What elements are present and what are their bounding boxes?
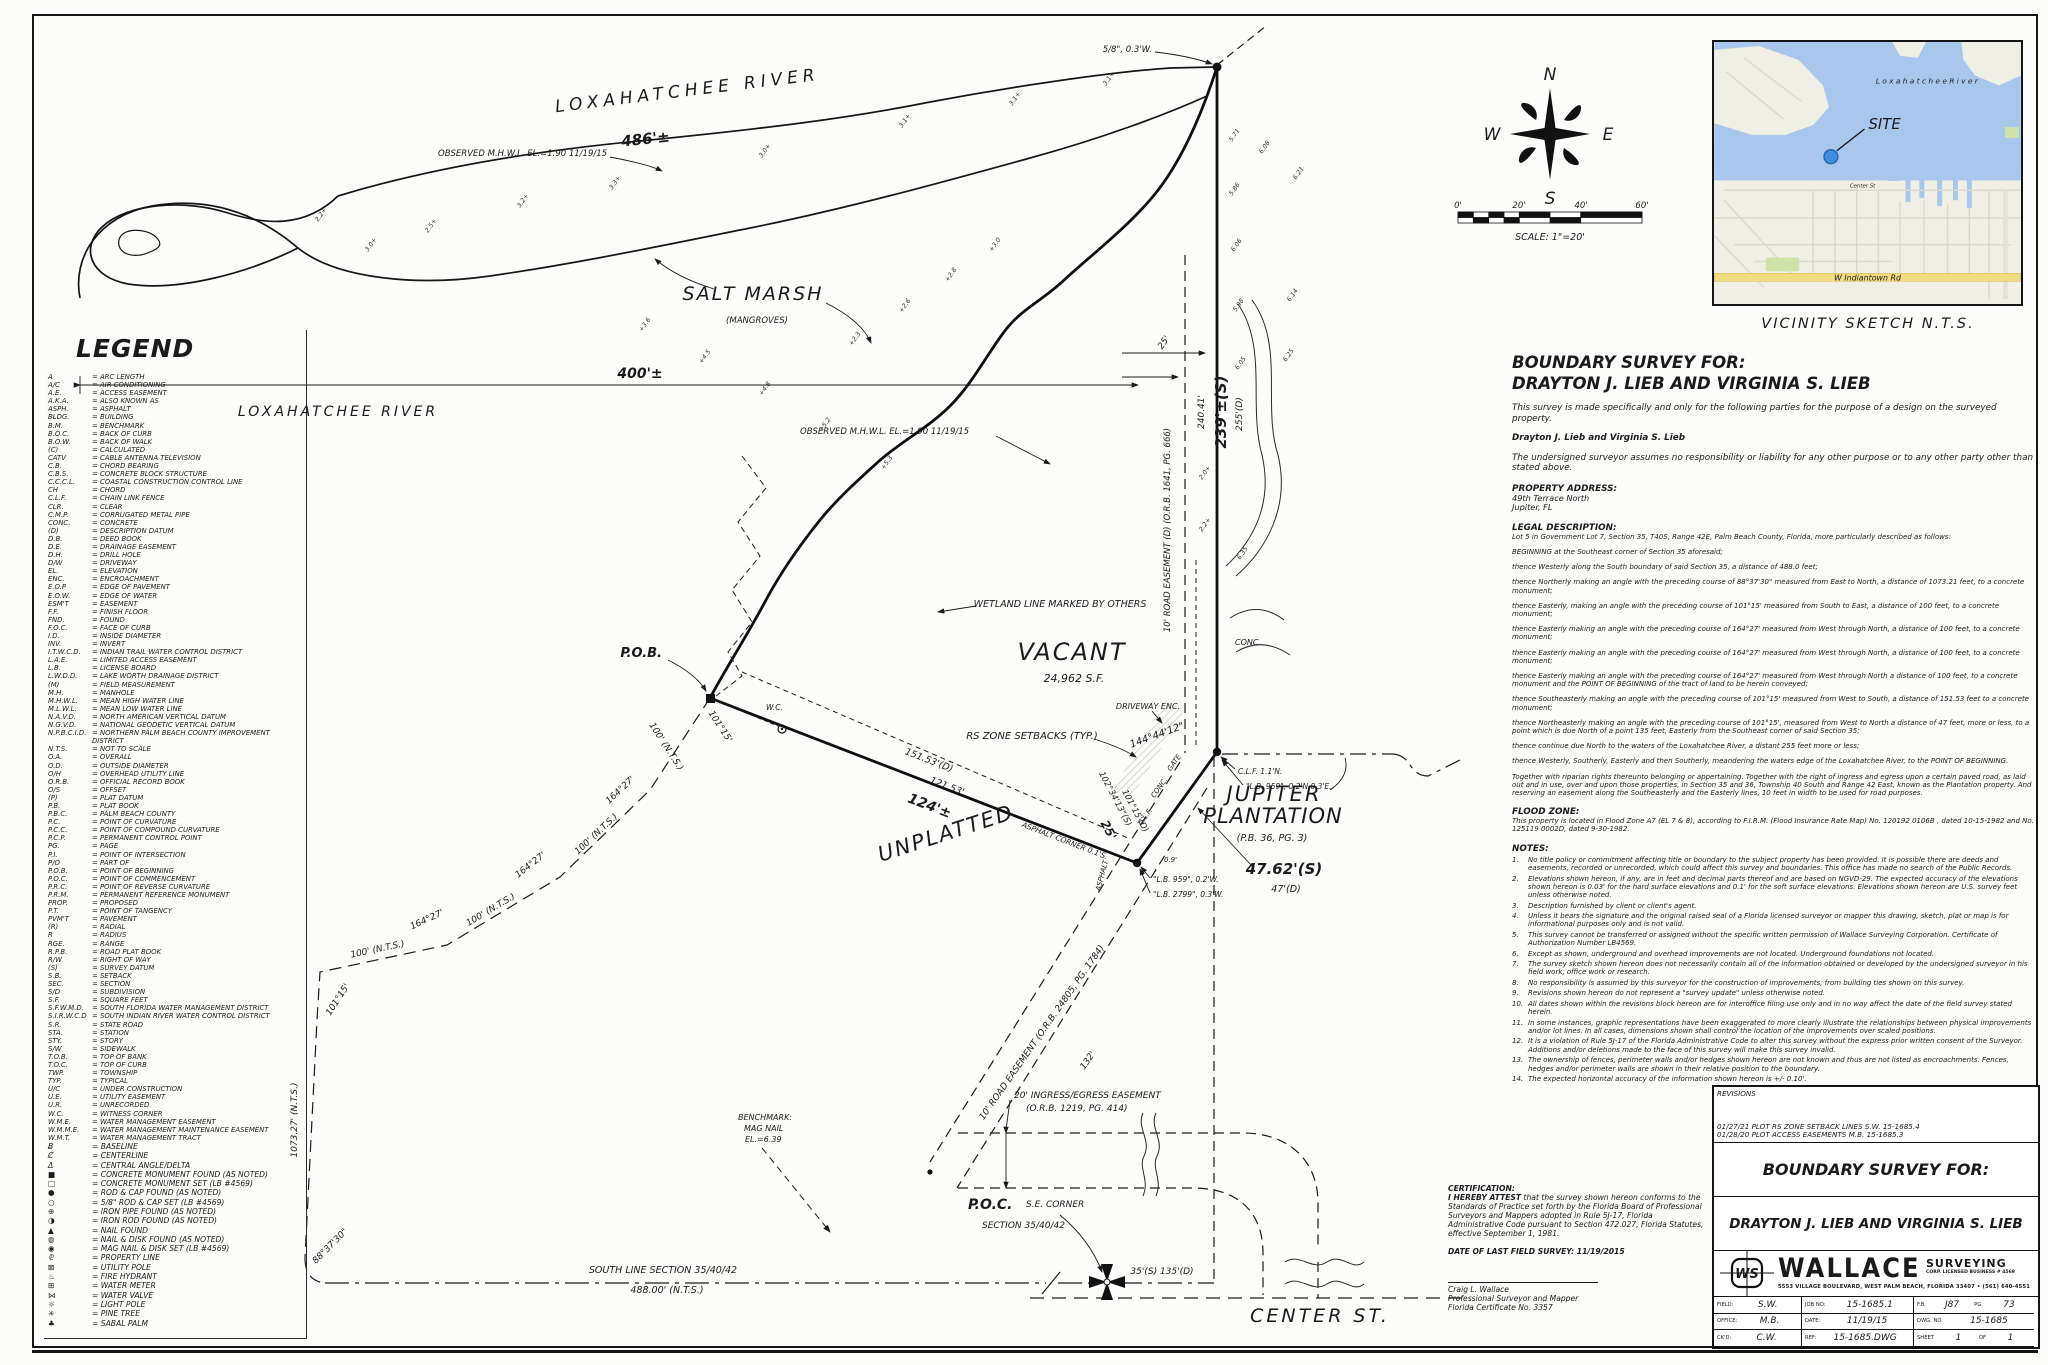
legend-abbr: ⊞ — [48, 1281, 92, 1290]
legend-meaning: EDGE OF PAVEMENT — [92, 583, 302, 591]
legend-abbr: ☼ — [48, 1300, 92, 1309]
vicinity-site-label: SITE — [1868, 116, 1901, 133]
legend-abbr: STA. — [48, 1029, 92, 1037]
signer-certificate: Florida Certificate No. 3357 — [1448, 1303, 1710, 1312]
flood-zone-label: FLOOD ZONE: — [1512, 807, 2036, 817]
spot-elevation: 2.5+ — [424, 218, 439, 235]
label-river-name-top: LOXAHATCHEE RIVER — [554, 65, 821, 117]
legal-paragraph: thence Northeasterly making an angle wit… — [1512, 719, 2036, 735]
property-address-label: PROPERTY ADDRESS: — [1512, 484, 2036, 494]
legend-abbr: P.B. — [48, 802, 92, 810]
note-item: 13. The ownership of fences, perimeter w… — [1512, 1056, 2036, 1073]
label-vacant-sf: 24,962 S.F. — [1044, 672, 1105, 685]
legend-abbr: B.O.C. — [48, 430, 92, 438]
legend-entry: CONC. CONCRETE — [48, 519, 302, 527]
legend-meaning: SUBDIVISION — [92, 988, 302, 996]
label-dim-124: 124'± — [905, 791, 953, 822]
legend-entry: I.D. INSIDE DIAMETER — [48, 632, 302, 640]
legend-meaning: EDGE OF WATER — [92, 592, 302, 600]
legend-entry: ■ CONCRETE MONUMENT FOUND (AS NOTED) — [48, 1170, 302, 1179]
label-dim-488: 488.00' (N.T.S.) — [630, 1285, 703, 1296]
legend-abbr: U/C — [48, 1085, 92, 1093]
signer-name: Craig L. Wallace — [1448, 1285, 1710, 1294]
legend-entry: (R) RADIAL — [48, 923, 302, 931]
legend-abbr: P.I. — [48, 851, 92, 859]
legend-entry: TYP. TYPICAL — [48, 1077, 302, 1085]
legend-entry: S.I.R.W.C.D SOUTH INDIAN RIVER WATER CON… — [48, 1012, 302, 1020]
legend-entry: RGE. RANGE — [48, 940, 302, 948]
legend-entry: O.R.B. OFFICIAL RECORD BOOK — [48, 778, 302, 786]
legend-meaning: DEED BOOK — [92, 535, 302, 543]
legend-meaning: POINT OF CURVATURE — [92, 818, 302, 826]
legend-meaning: RADIAL — [92, 923, 302, 931]
legend-entry: C.L.F. CHAIN LINK FENCE — [48, 494, 302, 502]
label-wc: W.C. — [766, 703, 783, 712]
label-pob: P.O.B. — [620, 646, 662, 661]
note-item: 4. Unless it bears the signature and the… — [1512, 912, 2036, 929]
of-label: OF — [1979, 1335, 1986, 1341]
legend-meaning: OVERALL — [92, 753, 302, 761]
legend-entry: L.B. LICENSE BOARD — [48, 664, 302, 672]
note-number: 14. — [1512, 1075, 1528, 1083]
legend-meaning: LICENSE BOARD — [92, 664, 302, 672]
legend-meaning: WATER MANAGEMENT EASEMENT — [92, 1118, 302, 1126]
vicinity-river-label: L o x a h a t c h e e R i v e r — [1876, 77, 1979, 86]
spot-elevation: 2.0+ — [1198, 465, 1213, 482]
legend-entry: ⊠ UTILITY POLE — [48, 1263, 302, 1272]
legend-meaning: ASPHALT — [92, 405, 302, 413]
legend-entry: SEC. SECTION — [48, 980, 302, 988]
legend-meaning: WATER MANAGEMENT MAINTENANCE EASEMENT — [92, 1126, 302, 1134]
legend-abbr: ESM'T — [48, 600, 92, 608]
legend-entry: P.T. POINT OF TANGENCY — [48, 907, 302, 915]
legend-abbr: O/H — [48, 770, 92, 778]
legend-meaning: POINT OF COMPOUND CURVATURE — [92, 826, 302, 834]
legend-meaning: 5/8" ROD & CAP SET (LB #4569) — [92, 1198, 302, 1207]
label-center-st: CENTER ST. — [1250, 1305, 1390, 1327]
legend-meaning: DRIVEWAY — [92, 559, 302, 567]
legend-meaning: FIELD MEASUREMENT — [92, 681, 302, 689]
legend-entry: ▲ NAIL FOUND — [48, 1226, 302, 1235]
label-ang-16427-a: 164°27' — [604, 775, 637, 807]
legend-abbr: P.C.P. — [48, 834, 92, 842]
label-rs-setbacks: RS ZONE SETBACKS (TYP.) — [966, 731, 1098, 742]
legend-meaning: NORTHERN PALM BEACH COUNTY IMPROVEMENT D… — [92, 729, 302, 745]
legend-abbr: P.O.C. — [48, 875, 92, 883]
legend-abbr: CLR. — [48, 503, 92, 511]
label-south-line: SOUTH LINE SECTION 35/40/42 — [589, 1265, 737, 1276]
legend-meaning: TOWNSHIP — [92, 1069, 302, 1077]
label-salt-marsh: SALT MARSH — [683, 283, 824, 305]
legend-meaning: WITNESS CORNER — [92, 1110, 302, 1118]
legend-meaning: PLAT BOOK — [92, 802, 302, 810]
highway-vertical — [2003, 190, 2008, 299]
label-jupiter-3: (P.B. 36, PG. 3) — [1237, 833, 1308, 844]
label-asphalt-v: ASPHALT — [1094, 859, 1110, 893]
legend-abbr: ● — [48, 1188, 92, 1197]
legend-abbr: A.E. — [48, 389, 92, 397]
label-dim-100-d: 100' (N.T.S.) — [350, 939, 406, 960]
site-marker — [1824, 150, 1838, 164]
titleblock-survey-for: BOUNDARY SURVEY FOR: — [1714, 1143, 2038, 1197]
legend-abbr: W.M.T. — [48, 1134, 92, 1142]
note-number: 5. — [1512, 931, 1528, 948]
legend-entry: ☼ LIGHT POLE — [48, 1300, 302, 1309]
legend-meaning: MEAN HIGH WATER LINE — [92, 697, 302, 705]
legend-meaning: CONCRETE MONUMENT SET (LB #4569) — [92, 1179, 302, 1188]
cell-sheet: SHEET1OF1 — [1914, 1330, 2034, 1347]
legend-abbr: (D) — [48, 527, 92, 535]
legend-meaning: NOT TO SCALE — [92, 745, 302, 753]
legend-entry: ◍ NAIL & DISK FOUND (AS NOTED) — [48, 1235, 302, 1244]
label-ingress-2: (O.R.B. 1219, PG. 414) — [1026, 1104, 1128, 1114]
legend-entry: ♣ SABAL PALM — [48, 1319, 302, 1328]
label-ang-10115-a: 101°15' — [706, 709, 734, 744]
label-ang-16427-b: 164°27' — [514, 851, 548, 881]
legend-entry: ◑ IRON ROD FOUND (AS NOTED) — [48, 1216, 302, 1225]
note-number: 1. — [1512, 856, 1528, 873]
legend-entry: EL. ELEVATION — [48, 567, 302, 575]
note-number: 7. — [1512, 960, 1528, 977]
legend-abbr: U.R. — [48, 1101, 92, 1109]
legend-abbr: M.H. — [48, 689, 92, 697]
compass-e: E — [1603, 125, 1614, 145]
legend-entry: P.C.P. PERMANENT CONTROL POINT — [48, 834, 302, 842]
vicinity-caption: VICINITY SKETCH N.T.S. — [1712, 316, 2024, 332]
note-item: 3. Description furnished by client or cl… — [1512, 902, 2036, 910]
job-value: 15-1685.1 — [1829, 1300, 1910, 1310]
monument-ne-corner — [1213, 63, 1222, 72]
legend-entry: F.F. FINISH FLOOR — [48, 608, 302, 616]
legend-meaning: NAIL & DISK FOUND (AS NOTED) — [92, 1235, 302, 1244]
survey-intro: This survey is made specifically and onl… — [1512, 403, 2036, 424]
label-dim-486: 486'± — [619, 128, 670, 151]
ref-value: 15-1685.DWG — [1820, 1333, 1910, 1343]
legend-meaning: UTILITY EASEMENT — [92, 1093, 302, 1101]
pg-value: 73 — [1987, 1300, 2031, 1310]
legend-meaning: DESCRIPTION DATUM — [92, 527, 302, 535]
legend-abbr: □ — [48, 1179, 92, 1188]
note-text: The survey sketch shown hereon does not … — [1528, 960, 2036, 977]
legend-abbr: PROP. — [48, 899, 92, 907]
revisions-label: REVISIONS — [1717, 1089, 1756, 1098]
legend-entry: E.O.W. EDGE OF WATER — [48, 592, 302, 600]
legend-entry: C.B. CHORD BEARING — [48, 462, 302, 470]
dashed-lines — [305, 26, 1462, 1298]
legend-abbr: E.O.P — [48, 583, 92, 591]
note-text: Revisions shown hereon do not represent … — [1528, 989, 2036, 997]
legend-meaning: CHAIN LINK FENCE — [92, 494, 302, 502]
legend-abbr: FND. — [48, 616, 92, 624]
legend-abbr: R — [48, 931, 92, 939]
property-address-line: 49th Terrace North — [1512, 494, 2036, 504]
legend-abbr: I.T.W.C.D. — [48, 648, 92, 656]
legend-entry: S/W SIDEWALK — [48, 1045, 302, 1053]
legend-entry: U/C UNDER CONSTRUCTION — [48, 1085, 302, 1093]
spot-elevation: 6.06 — [1230, 238, 1244, 254]
legend-abbr: O/S — [48, 786, 92, 794]
legend-meaning: LAKE WORTH DRAINAGE DISTRICT — [92, 672, 302, 680]
legend-meaning: POINT OF INTERSECTION — [92, 851, 302, 859]
label-vacant: VACANT — [1018, 638, 1127, 666]
spot-elevation: +3.0 — [988, 237, 1003, 254]
label-asphalt-corner: ASPHALT CORNER 0.1'S. — [1020, 820, 1109, 861]
legend-entry: N.A.V.D. NORTH AMERICAN VERTICAL DATUM — [48, 713, 302, 721]
cell-dwg: DWG. NO.15-1685 — [1914, 1314, 2034, 1331]
label-dim-12153: 121.53' — [928, 775, 965, 798]
label-cor-ne: 5/8", 0.3'W. — [1103, 45, 1152, 55]
legend-meaning: CENTERLINE — [92, 1151, 302, 1160]
legend-meaning: PERMANENT REFERENCE MONUMENT — [92, 891, 302, 899]
label-wetland: WETLAND LINE MARKED BY OTHERS — [974, 599, 1147, 610]
legend-entry: D/W DRIVEWAY — [48, 559, 302, 567]
scale-tick-0: 0' — [1454, 201, 1462, 211]
sheet-value: 1 — [1938, 1333, 1979, 1343]
legend-entry: STY. STORY — [48, 1037, 302, 1045]
legend-meaning: BENCHMARK — [92, 422, 302, 430]
survey-for-heading: BOUNDARY SURVEY FOR: — [1512, 352, 2036, 373]
legend-entry: O.D. OUTSIDE DIAMETER — [48, 762, 302, 770]
property-address: 49th Terrace NorthJupiter, FL — [1512, 494, 2036, 513]
legend-entry: ○ 5/8" ROD & CAP SET (LB #4569) — [48, 1198, 302, 1207]
legend-entry: ● ROD & CAP FOUND (AS NOTED) — [48, 1188, 302, 1197]
spot-elevation: +4.5 — [698, 349, 713, 366]
monuments — [706, 63, 1222, 1175]
legend-abbr: U.E. — [48, 1093, 92, 1101]
legend-entry: R/W RIGHT OF WAY — [48, 956, 302, 964]
legend-abbr: ◍ — [48, 1235, 92, 1244]
dwg-value: 15-1685 — [1947, 1316, 2031, 1326]
legend-entry: C.M.P. CORRUGATED METAL PIPE — [48, 511, 302, 519]
legend-meaning: PROPERTY LINE — [92, 1253, 302, 1262]
note-text: Description furnished by client or clien… — [1528, 902, 2036, 910]
label-dim-132: 132' — [1079, 1050, 1098, 1072]
revision-entry: 01/28/20 PLOT ACCESS EASEMENTS M.B. 15-1… — [1717, 1131, 1920, 1140]
legend-entry: N.P.B.C.I.D. NORTHERN PALM BEACH COUNTY … — [48, 729, 302, 745]
field-value: S.W. — [1737, 1300, 1798, 1310]
legend-entry: T.O.B. TOP OF BANK — [48, 1053, 302, 1061]
ws-monogram-icon: WS — [1718, 1251, 1776, 1296]
sheet-border-bottom — [32, 1350, 2038, 1353]
notes-label: NOTES: — [1512, 844, 2036, 854]
legend-entry: B.O.C. BACK OF CURB — [48, 430, 302, 438]
legend-meaning: CABLE ANTENNA TELEVISION — [92, 454, 302, 462]
field-label: FIELD: — [1717, 1302, 1733, 1308]
label-ingress-1: 20' INGRESS/EGRESS EASEMENT — [1014, 1091, 1162, 1101]
legend-abbr: P.R.C. — [48, 883, 92, 891]
legend-abbr: O.A. — [48, 753, 92, 761]
note-number: 13. — [1512, 1056, 1528, 1073]
legend-entry: P.B. PLAT BOOK — [48, 802, 302, 810]
legend-entry: U.R. UNRECORDED — [48, 1101, 302, 1109]
legend-abbr: ♣ — [48, 1319, 92, 1328]
legend-abbr: M.L.W.L. — [48, 705, 92, 713]
legend-entry: L.W.D.D. LAKE WORTH DRAINAGE DISTRICT — [48, 672, 302, 680]
legend-entry: ⊕ IRON PIPE FOUND (AS NOTED) — [48, 1207, 302, 1216]
legend-abbr: PVM'T — [48, 915, 92, 923]
legend-abbr: L.W.D.D. — [48, 672, 92, 680]
legend-meaning: SECTION — [92, 980, 302, 988]
spot-elevation: 3.2+ — [516, 193, 531, 210]
legend-title: LEGEND — [76, 334, 302, 363]
company-license: CORP. LICENSED BUSINESS # 4569 — [1926, 1270, 2015, 1275]
legend-abbr: STY. — [48, 1037, 92, 1045]
legend-entry: S.F.W.M.D. SOUTH FLORIDA WATER MANAGEMEN… — [48, 1004, 302, 1012]
legend-meaning: WATER METER — [92, 1281, 302, 1290]
note-item: 5. This survey cannot be transferred or … — [1512, 931, 2036, 948]
legend-abbr: P.B.C. — [48, 810, 92, 818]
legend-abbr: Ƀ — [48, 1142, 92, 1151]
legend-meaning: ROD & CAP FOUND (AS NOTED) — [92, 1188, 302, 1197]
cell-field: FIELD:S.W. — [1714, 1297, 1802, 1314]
legend-entry: ✳ PINE TREE — [48, 1309, 302, 1318]
label-mangroves: (MANGROVES) — [726, 316, 788, 326]
cell-fb-pg: F.B.J87PG.73 — [1914, 1297, 2034, 1314]
legend-entry: D.B. DEED BOOK — [48, 535, 302, 543]
note-text: This survey cannot be transferred or ass… — [1528, 931, 2036, 948]
pg-label: PG. — [1974, 1302, 1983, 1308]
office-label: OFFICE: — [1717, 1318, 1737, 1324]
legend-entry: N.G.V.D. NATIONAL GEODETIC VERTICAL DATU… — [48, 721, 302, 729]
legend-entry: U.E. UTILITY EASEMENT — [48, 1093, 302, 1101]
note-text: Except as shown, underground and overhea… — [1528, 950, 2036, 958]
note-item: 9. Revisions shown hereon do not represe… — [1512, 989, 2036, 997]
label-benchmark-2: MAG NAIL — [744, 1124, 783, 1133]
legend-entry: S.R. STATE ROAD — [48, 1021, 302, 1029]
legend-abbr: P.O.B. — [48, 867, 92, 875]
legend-meaning: BUILDING — [92, 413, 302, 421]
legend-abbr: A.K.A. — [48, 397, 92, 405]
legend-abbr: ▲ — [48, 1226, 92, 1235]
label-lb959w: "L.B. 959", 0.2'W. — [1153, 875, 1219, 884]
scale-tick-20: 20' — [1512, 201, 1525, 211]
legend-meaning: SQUARE FEET — [92, 996, 302, 1004]
vicinity-road-label: W Indiantown Rd — [1834, 273, 1902, 282]
note-number: 3. — [1512, 902, 1528, 910]
certification-text: I HEREBY ATTEST that the survey shown he… — [1448, 1193, 1710, 1238]
legend-abbr: (P) — [48, 794, 92, 802]
legend-entry: ⅊ PROPERTY LINE — [48, 1253, 302, 1262]
label-clf-n: C.L.F. 1.1'N. — [1238, 767, 1282, 776]
legend-meaning: CENTRAL ANGLE/DELTA — [92, 1161, 302, 1170]
label-dim-100-c: 100' (N.T.S.) — [465, 892, 517, 929]
spot-elevation: 6.08 — [1258, 140, 1272, 156]
legend-entry: FND. FOUND — [48, 616, 302, 624]
legend-entry: (P) PLAT DATUM — [48, 794, 302, 802]
legend-abbr: (M) — [48, 681, 92, 689]
legend-entry: ◉ MAG NAIL & DISK SET (LB #4569) — [48, 1244, 302, 1253]
legend-abbr: S.I.R.W.C.D — [48, 1012, 92, 1020]
legend-abbr: D.E. — [48, 543, 92, 551]
legal-paragraph: thence Easterly making an angle with the… — [1512, 672, 2036, 688]
legend-meaning: OFFICIAL RECORD BOOK — [92, 778, 302, 786]
legend-abbr: L.B. — [48, 664, 92, 672]
legend-abbr: ♨ — [48, 1272, 92, 1281]
legend-meaning: FINISH FLOOR — [92, 608, 302, 616]
note-text: All dates shown within the revisions blo… — [1528, 1000, 2036, 1017]
legend-meaning: ENCROACHMENT — [92, 575, 302, 583]
label-dim-35135: 35'(S) 135'(D) — [1130, 1267, 1193, 1277]
legend-entry: (S) SURVEY DATUM — [48, 964, 302, 972]
label-poc-3: SECTION 35/40/42 — [982, 1221, 1065, 1231]
legend-entry: P.O.B. POINT OF BEGINNING — [48, 867, 302, 875]
legend-meaning: FOUND — [92, 616, 302, 624]
legend-meaning: OUTSIDE DIAMETER — [92, 762, 302, 770]
legend-abbr: S/D — [48, 988, 92, 996]
property-address-line: Jupiter, FL — [1512, 503, 2036, 513]
note-number: 4. — [1512, 912, 1528, 929]
label-dim-25: 25' — [1156, 334, 1172, 351]
spot-elevation: 3.0+ — [364, 237, 379, 254]
cell-office: OFFICE:M.B. — [1714, 1314, 1802, 1331]
label-dim-255: 255'(D) — [1235, 397, 1245, 431]
legend-entry: (M) FIELD MEASUREMENT — [48, 681, 302, 689]
fb-label: F.B. — [1917, 1302, 1926, 1308]
legend-meaning: EASEMENT — [92, 600, 302, 608]
legal-description-body: BEGINNING at the Southeast corner of Sec… — [1512, 548, 2036, 797]
spot-elevation: +2.3 — [848, 331, 863, 348]
certification-block: CERTIFICATION: I HEREBY ATTEST that the … — [1448, 1184, 1710, 1312]
legend-meaning: CONCRETE — [92, 519, 302, 527]
label-ang-10115-b: 101°15' — [324, 982, 352, 1017]
legend-meaning: POINT OF TANGENCY — [92, 907, 302, 915]
legend-abbr: CONC. — [48, 519, 92, 527]
mag-nail-symbol — [1089, 1264, 1125, 1300]
legend-abbr: W.M.E. — [48, 1118, 92, 1126]
note-item: 14. The expected horizontal accuracy of … — [1512, 1075, 2036, 1083]
legend-entry: A.K.A. ALSO KNOWN AS — [48, 397, 302, 405]
legend-meaning: PART OF — [92, 859, 302, 867]
legend-abbr: D.H. — [48, 551, 92, 559]
legend-abbr: F.O.C. — [48, 624, 92, 632]
legend-entry: O/S OFFSET — [48, 786, 302, 794]
legend-entry: N.T.S. NOT TO SCALE — [48, 745, 302, 753]
legend-entry: B.M. BENCHMARK — [48, 422, 302, 430]
legend-abbr: ◉ — [48, 1244, 92, 1253]
legend-meaning: POINT OF COMMENCEMENT — [92, 875, 302, 883]
legend-meaning: WATER VALVE — [92, 1291, 302, 1300]
legend-entry: M.H.W.L. MEAN HIGH WATER LINE — [48, 697, 302, 705]
legend-abbr: P.T. — [48, 907, 92, 915]
legend-abbr: S.R. — [48, 1021, 92, 1029]
monument-asphalt-corner — [1133, 859, 1141, 867]
job-label: JOB NO: — [1805, 1302, 1825, 1308]
sheet-label: SHEET — [1917, 1335, 1934, 1341]
legend-entry: ♨ FIRE HYDRANT — [48, 1272, 302, 1281]
legend-entry: C.B.S. CONCRETE BLOCK STRUCTURE — [48, 470, 302, 478]
legend-entry: STA. STATION — [48, 1029, 302, 1037]
legend-meaning: MAG NAIL & DISK SET (LB #4569) — [92, 1244, 302, 1253]
legal-paragraph: thence Southeasterly making an angle wit… — [1512, 695, 2036, 711]
legend-meaning: INSIDE DIAMETER — [92, 632, 302, 640]
legend-entry: R.P.B. ROAD PLAT BOOK — [48, 948, 302, 956]
legend-meaning: ROAD PLAT BOOK — [92, 948, 302, 956]
legend-meaning: OFFSET — [92, 786, 302, 794]
vicinity-street-label: Center St — [1850, 183, 1876, 189]
signer-title: Professional Surveyor and Mapper — [1448, 1294, 1710, 1303]
note-text: Elevations shown hereon, if any, are in … — [1528, 875, 2036, 900]
legend-entry: ESM'T EASEMENT — [48, 600, 302, 608]
legend-entry: INV. INVERT — [48, 640, 302, 648]
signature-line — [1448, 1282, 1598, 1283]
legend-abbr: T.O.C. — [48, 1061, 92, 1069]
client-names-heading: DRAYTON J. LIEB AND VIRGINIA S. LIEB — [1512, 373, 2036, 394]
compass-rose: N S W E — [1478, 62, 1622, 212]
legend-meaning: CHORD BEARING — [92, 462, 302, 470]
spot-elevation: +3.6 — [638, 317, 653, 334]
legend-abbr: A/C — [48, 381, 92, 389]
scale-tick-40: 40' — [1574, 201, 1587, 211]
